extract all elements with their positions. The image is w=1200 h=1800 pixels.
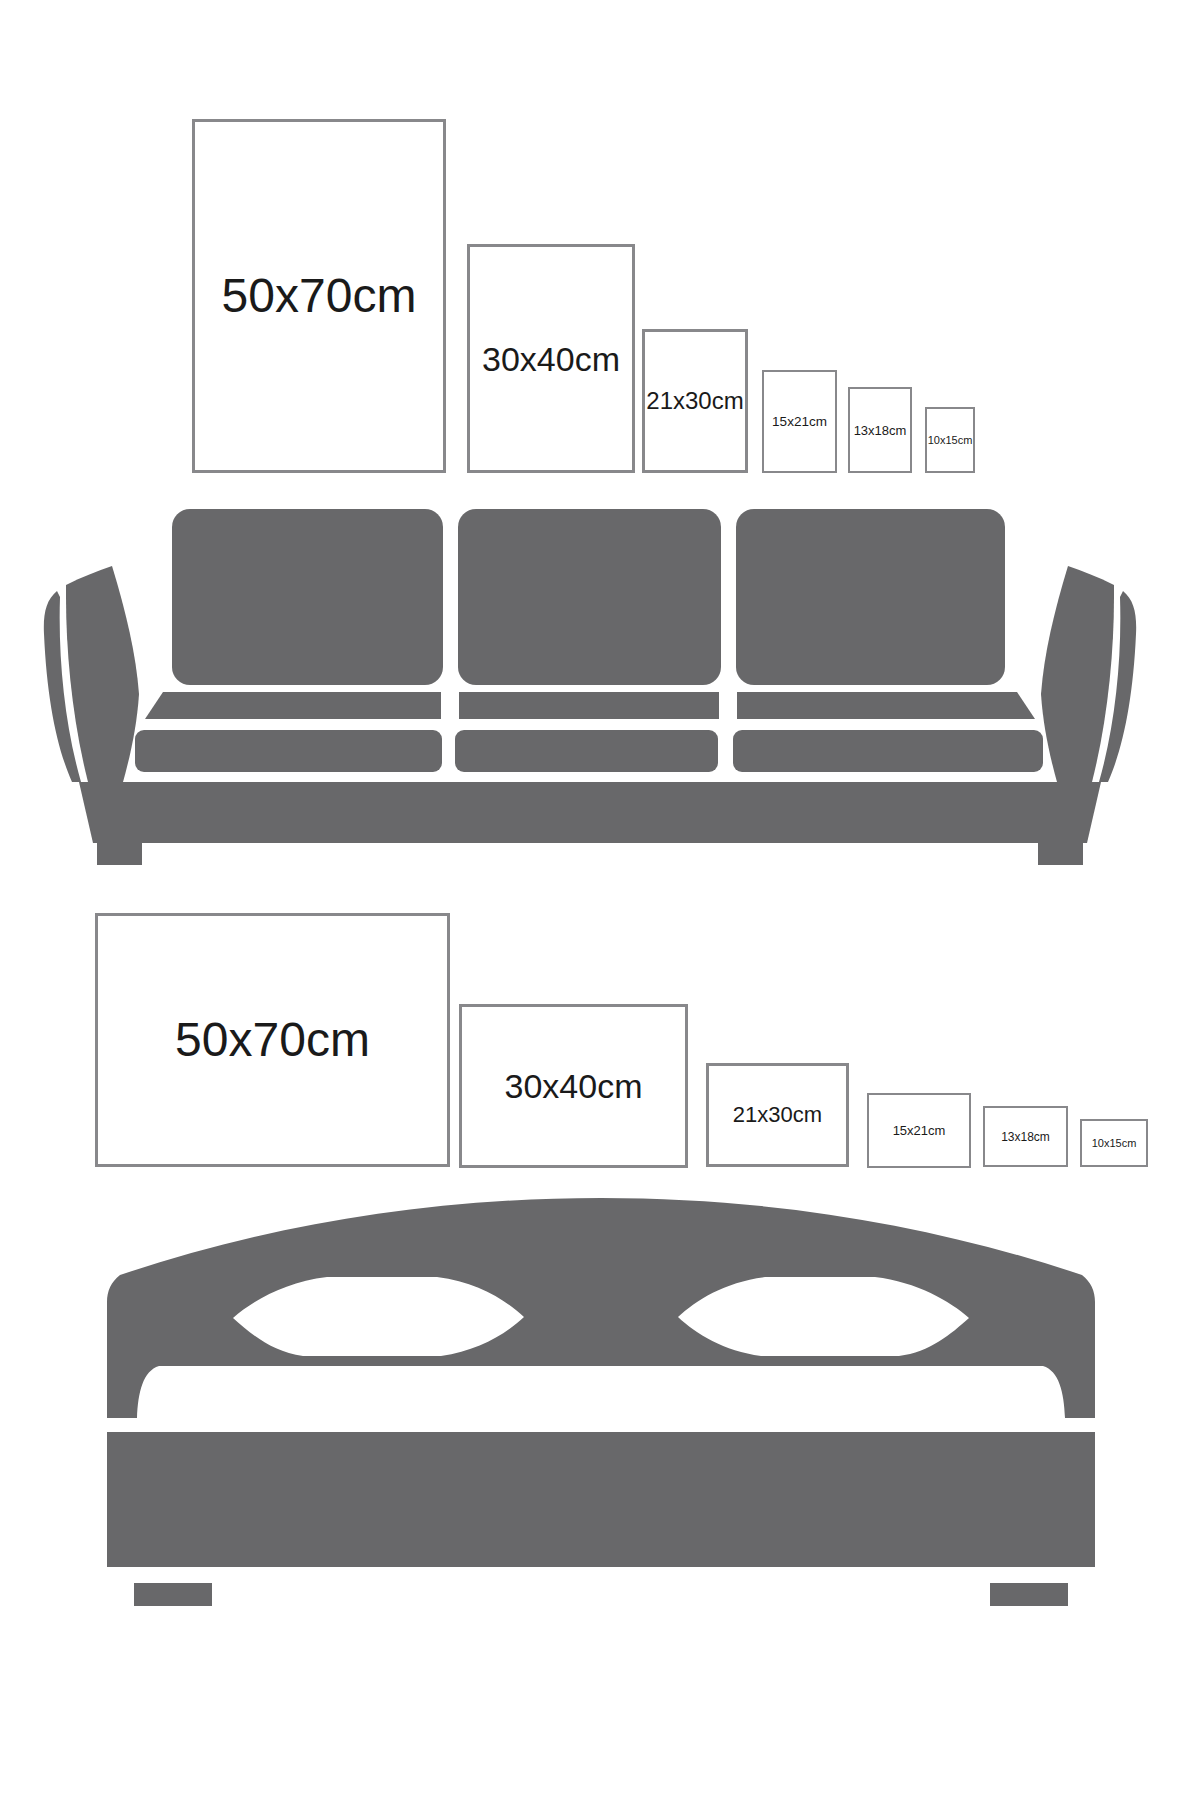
- sofa-arm-right: [1041, 566, 1136, 782]
- bed-illustration: [107, 1198, 1095, 1606]
- poster-frame-21x30-landscape: 21x30cm: [706, 1063, 849, 1167]
- poster-frame-10x15-portrait: 10x15cm: [925, 407, 975, 473]
- poster-frame-30x40-portrait: 30x40cm: [467, 244, 635, 473]
- poster-frame-50x70-landscape: 50x70cm: [95, 913, 450, 1167]
- frame-size-label: 30x40cm: [505, 1069, 643, 1103]
- sofa-back-cushion-left: [172, 509, 443, 685]
- poster-frame-15x21-landscape: 15x21cm: [867, 1093, 971, 1168]
- frame-size-label: 13x18cm: [854, 424, 907, 437]
- sofa-leg-right: [1038, 843, 1083, 865]
- frame-size-label: 30x40cm: [482, 342, 620, 376]
- poster-frame-15x21-portrait: 15x21cm: [762, 370, 837, 473]
- size-guide-page: 50x70cm 30x40cm 21x30cm 15x21cm 13x18cm …: [0, 0, 1200, 1800]
- frame-size-label: 15x21cm: [772, 415, 827, 429]
- frame-size-label: 50x70cm: [222, 272, 417, 320]
- sofa-seat-divider: [719, 684, 737, 732]
- sofa-front-cushion-middle: [455, 730, 718, 772]
- frame-size-label: 15x21cm: [893, 1124, 946, 1137]
- sofa-seat-divider: [441, 684, 459, 732]
- bed-leg-left: [134, 1583, 212, 1606]
- sofa-back-cushion-right: [736, 509, 1005, 685]
- sofa-illustration: [44, 509, 1136, 865]
- sofa-base: [79, 782, 1101, 843]
- frame-size-label: 13x18cm: [1001, 1131, 1050, 1143]
- poster-frame-10x15-landscape: 10x15cm: [1080, 1119, 1148, 1167]
- bed-leg-right: [990, 1583, 1068, 1606]
- sofa-arm-left: [44, 566, 139, 782]
- sofa-back-cushion-middle: [458, 509, 721, 685]
- bed-base: [107, 1432, 1095, 1567]
- sofa-front-cushion-left: [135, 730, 442, 772]
- poster-frame-13x18-landscape: 13x18cm: [983, 1106, 1068, 1167]
- poster-frame-30x40-landscape: 30x40cm: [459, 1004, 688, 1168]
- frame-size-label: 21x30cm: [733, 1104, 822, 1126]
- bed-headboard: [107, 1198, 1095, 1418]
- frame-size-label: 50x70cm: [175, 1016, 370, 1064]
- poster-frame-13x18-portrait: 13x18cm: [848, 387, 912, 473]
- frame-size-label: 10x15cm: [928, 435, 973, 446]
- sofa-seat: [145, 692, 1035, 719]
- sofa-front-cushion-right: [733, 730, 1043, 772]
- poster-frame-21x30-portrait: 21x30cm: [642, 329, 748, 473]
- frame-size-label: 21x30cm: [646, 389, 743, 413]
- frame-size-label: 10x15cm: [1092, 1138, 1137, 1149]
- sofa-leg-left: [97, 843, 142, 865]
- poster-frame-50x70-portrait: 50x70cm: [192, 119, 446, 473]
